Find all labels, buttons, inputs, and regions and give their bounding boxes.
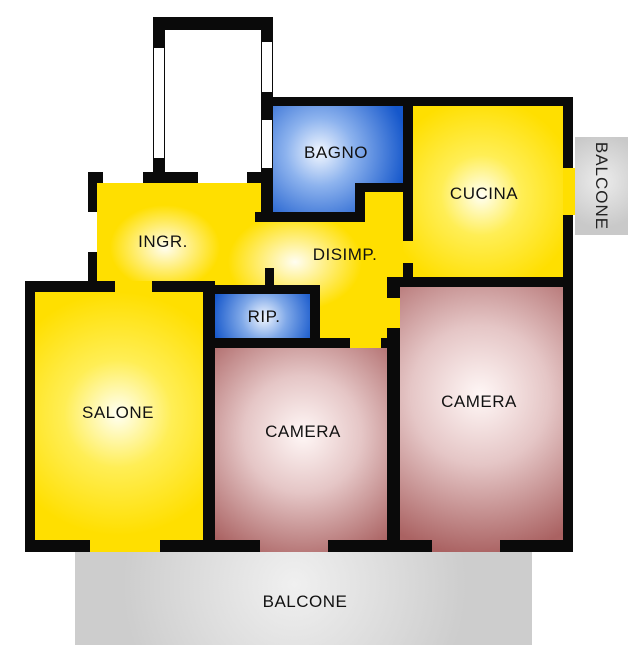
wall xyxy=(160,540,260,552)
window-opening xyxy=(88,212,97,252)
room-label-salone: SALONE xyxy=(82,403,154,423)
room-label-balcone-bottom: BALCONE xyxy=(263,592,348,612)
door-opening-cucina-balcony xyxy=(563,168,575,215)
room-label-disimpegno: DISIMP. xyxy=(313,245,378,265)
stairwell-interior xyxy=(165,30,261,172)
wall xyxy=(25,281,115,292)
room-label-balcone-right: BALCONE xyxy=(591,142,611,230)
room-label-ingresso: INGR. xyxy=(138,232,188,252)
wall xyxy=(203,281,215,552)
wall xyxy=(387,328,400,552)
wall xyxy=(500,540,573,552)
room-label-ripostiglio: RIP. xyxy=(248,307,281,327)
wall xyxy=(563,215,573,279)
wall xyxy=(25,281,35,552)
wall xyxy=(265,268,274,285)
window-opening xyxy=(103,172,143,183)
wall xyxy=(203,285,320,294)
window-opening xyxy=(262,42,272,92)
entry-door-opening xyxy=(198,172,247,183)
wall xyxy=(153,17,273,30)
room-label-cucina: CUCINA xyxy=(450,184,518,204)
wall xyxy=(88,182,97,212)
room-camera-2 xyxy=(387,277,573,552)
room-label-bagno: BAGNO xyxy=(304,143,368,163)
wall xyxy=(563,277,573,552)
door-opening-camera-1 xyxy=(350,338,381,348)
room-label-camera-2: CAMERA xyxy=(441,392,517,412)
wall xyxy=(328,540,432,552)
wall xyxy=(255,212,365,222)
window-opening xyxy=(154,48,164,158)
wall xyxy=(203,338,350,348)
door-opening-camera-2 xyxy=(387,298,400,328)
wall xyxy=(265,97,573,106)
wall xyxy=(355,183,403,192)
wall xyxy=(25,540,90,552)
room-label-camera-1: CAMERA xyxy=(265,422,341,442)
floor-plan: BAGNO CUCINA INGR. DISIMP. RIP. SALONE C… xyxy=(0,0,640,664)
room-camera-1 xyxy=(203,338,395,552)
wall xyxy=(563,105,573,168)
window-opening xyxy=(262,120,272,168)
wall xyxy=(403,97,413,241)
wall xyxy=(393,277,573,287)
